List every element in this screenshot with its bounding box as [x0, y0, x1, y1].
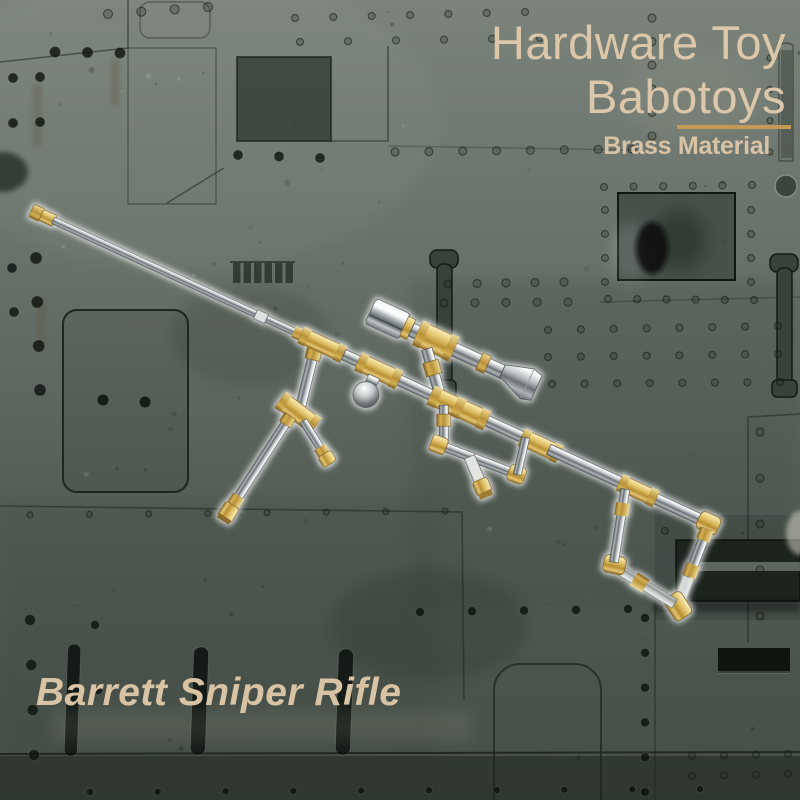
- brand-title: Hardware Toy Babotoys: [491, 16, 786, 124]
- rounded-door-panel: [63, 310, 188, 492]
- product-name-caption: Barrett Sniper Rifle: [36, 671, 401, 715]
- access-hatch: [610, 193, 735, 282]
- round-port: [775, 175, 797, 197]
- title-underline: [677, 125, 791, 129]
- product-ad-image: Hardware Toy Babotoys Brass Material Bar…: [0, 0, 800, 800]
- bottom-right-slot: [718, 648, 790, 674]
- brand-title-line2: Babotoys: [491, 70, 786, 124]
- material-subtitle: Brass Material: [603, 132, 770, 161]
- dark-top-panel: [237, 57, 331, 141]
- bottom-dark-band: [0, 756, 800, 800]
- brand-title-line1: Hardware Toy: [491, 16, 786, 70]
